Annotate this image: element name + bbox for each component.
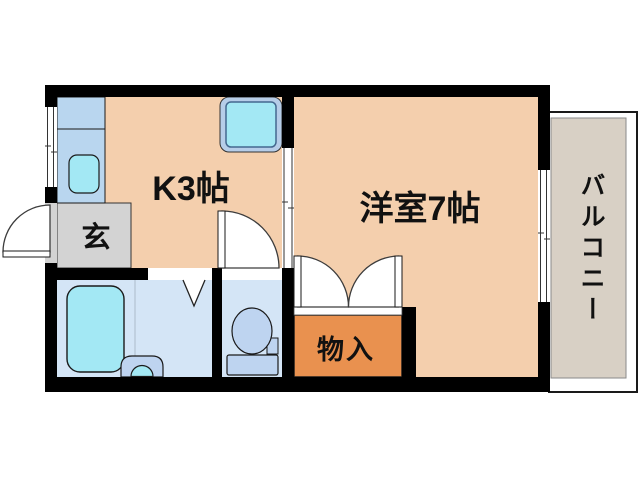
wall-storage-right (402, 307, 416, 377)
wall-toilet-left (212, 280, 222, 377)
floor-plan-svg: K3帖 洋室7帖 玄 物入 (0, 0, 640, 480)
kitchen-label: K3帖 (152, 170, 229, 208)
storage-label: 物入 (317, 335, 375, 365)
wall-bottom (45, 377, 550, 392)
kitchen-sliding-door (282, 148, 294, 268)
toilet-tank (227, 355, 278, 375)
entrance-door (3, 205, 50, 257)
wall-kitchen-partition-upper (282, 97, 294, 148)
bathtub-icon (67, 286, 124, 372)
toilet-bowl-icon (232, 308, 272, 354)
washroom-doorway (148, 268, 212, 280)
balcony-window (538, 170, 550, 302)
floor-plan: K3帖 洋室7帖 玄 物入 バルコニー (0, 0, 640, 480)
balcony-label: バルコニー (573, 172, 609, 327)
appliance-top-icon (226, 102, 276, 147)
kitchen-counter (57, 97, 105, 203)
western-room-label: 洋室7帖 (360, 189, 481, 228)
left-window (45, 107, 57, 187)
kitchen-sink-icon (69, 155, 99, 193)
closet-threshold (294, 307, 402, 315)
kitchen-appliance (220, 97, 282, 152)
toilet-doorway (222, 268, 282, 280)
wall-top (45, 85, 550, 97)
entrance-label: 玄 (81, 220, 110, 254)
wall-kitchen-partition-lower (282, 268, 294, 377)
